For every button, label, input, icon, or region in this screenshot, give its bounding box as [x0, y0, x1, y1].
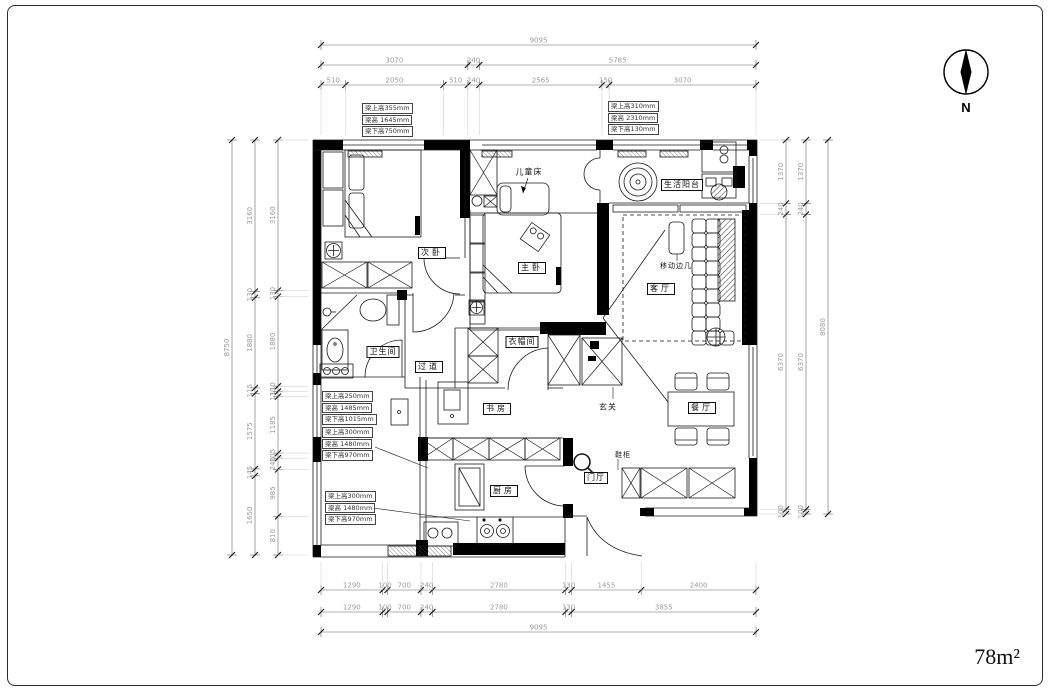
dim-value: 1650 [246, 507, 254, 525]
wardrobe-second-bedroom [368, 262, 412, 288]
label-shoe-cabinet: 鞋柜 [615, 450, 631, 460]
dim-value: 240 [467, 57, 480, 65]
beam-note-mid-left-lower: 梁上高300mm 梁高 1480mm 梁下高970mm [322, 427, 373, 462]
floor-plan-canvas: 9095 30702405785 51020505102402565150307… [0, 0, 1050, 691]
label-movable-side-table: 移动边几 [660, 261, 692, 271]
dim-value: 3070 [674, 77, 692, 85]
dim-value: 3160 [269, 206, 277, 224]
room-label-entry-hall: 门厅 [584, 472, 608, 484]
kitchen-cabinet-row [525, 438, 560, 460]
dim-chain-right-inner: 13702406370100 [760, 137, 791, 518]
bed-second-bedroom [323, 150, 421, 237]
kitchen-sink [424, 522, 458, 546]
dim-value: 1370 [797, 163, 805, 181]
dim-value: 240 [797, 202, 805, 215]
dim-value: 130 [246, 288, 254, 301]
shower-head-icon [323, 308, 336, 316]
living-room-guide-lines [603, 230, 668, 402]
dim-value: 6370 [777, 353, 785, 371]
wardrobe-second-bedroom [322, 262, 367, 288]
dim-value: 3160 [246, 207, 254, 225]
door-kitchen [525, 466, 565, 506]
shoe-cabinet-unit [622, 468, 640, 498]
label-foyer: 玄关 [599, 402, 617, 413]
dim-value: 2050 [386, 77, 404, 85]
dim-value: 1290 [343, 582, 361, 590]
dim-chain-bottom-total: 9095 [318, 624, 759, 638]
dim-value: 2400 [690, 582, 708, 590]
dim-value: 2780 [490, 582, 508, 590]
foyer-cabinet [582, 338, 622, 385]
dim-value: 8080 [819, 318, 827, 336]
dim-value: 9095 [530, 37, 548, 45]
room-label-kitchen: 厨房 [490, 485, 518, 497]
door-cloakroom [508, 348, 548, 390]
exhaust-fan-icon [325, 242, 342, 259]
foyer-cabinet [548, 335, 580, 385]
side-table [669, 222, 684, 254]
dim-value: 1880 [269, 333, 277, 351]
floor-drain-icon [711, 184, 727, 200]
dim-value: 130 [562, 604, 575, 612]
kitchen-cabinet-row [453, 438, 489, 460]
north-label: N [961, 100, 970, 115]
washing-machine [619, 163, 657, 201]
room-label-second-bedroom: 次卧 [418, 247, 446, 259]
room-label-cloakroom: 衣帽间 [506, 336, 539, 348]
dim-value: 240 [420, 582, 433, 590]
dim-value: 510 [449, 77, 462, 85]
beam-note-mid-left-upper: 梁上高250mm 梁高 1485mm 梁下高1015mm [322, 391, 377, 426]
dim-value: 100 [378, 582, 391, 590]
dim-value: 9095 [530, 624, 548, 632]
dim-value: 985 [269, 486, 277, 499]
toilet [360, 295, 399, 325]
dim-value: 810 [269, 529, 277, 542]
dim-value: 3070 [386, 57, 404, 65]
counter-hatch [388, 546, 451, 556]
sofa-wall-panel [718, 219, 735, 301]
hall-cabinet [391, 399, 408, 425]
chair-master-bedroom [520, 222, 549, 251]
room-label-dining-room: 餐厅 [688, 402, 716, 414]
dim-chain-bottom-row2: 129010070024027801303855 [318, 604, 759, 618]
dim-value: 6370 [797, 353, 805, 371]
room-label-study: 书房 [483, 403, 511, 415]
door-master-bedroom [413, 293, 454, 332]
beam-note-top-right: 梁上高310mm 梁高 2310mm 梁下高130mm [608, 101, 659, 136]
shoe-cabinet-unit [689, 468, 735, 498]
door-second-bedroom [424, 258, 460, 294]
dim-value: 8750 [223, 339, 231, 357]
dim-value: 700 [398, 604, 411, 612]
sofa-corner [692, 331, 734, 345]
dim-value: 100 [378, 604, 391, 612]
beam-note-top-left: 梁上高355mm 梁高 1645mm 梁下高750mm [362, 103, 413, 138]
dim-value: 1185 [269, 416, 277, 434]
room-label-living-balcony: 生活阳台 [661, 179, 703, 191]
kitchen-cabinet-row [489, 438, 525, 460]
dim-value: 1290 [343, 604, 361, 612]
area-label: 78m² [974, 644, 1020, 670]
dim-chain-bottom-row1: 1290100700240278013014552400 [318, 562, 759, 595]
dim-value: 110 [269, 387, 277, 400]
dim-value: 115 [246, 384, 254, 397]
dim-value: 2565 [532, 77, 550, 85]
dim-chain-top-row2: 30702405785 [318, 57, 759, 71]
dim-chain-top-total: 9095 [318, 37, 759, 51]
door-entrance [587, 517, 642, 556]
dim-value: 3855 [655, 604, 673, 612]
door-balcony [584, 158, 600, 190]
room-label-bathroom: 卫生间 [367, 346, 400, 358]
fridge [455, 464, 484, 510]
dim-chain-right-total: 8080 [819, 137, 833, 517]
dim-value: 240 [420, 604, 433, 612]
dim-value: 5785 [609, 57, 627, 65]
stove [477, 517, 513, 544]
dim-value: 100 [777, 505, 785, 518]
dim-value: 130 [562, 582, 575, 590]
children-bed-arrow [521, 178, 528, 193]
dim-chain-left-mid: 3160130188011515751451650 [246, 137, 260, 558]
room-label-hallway: 过道 [415, 361, 443, 373]
dim-value: 145 [246, 466, 254, 479]
cloakroom-cabinet [468, 328, 498, 356]
shoe-cabinet-unit [641, 468, 687, 498]
dim-value: 700 [398, 582, 411, 590]
dim-chain-right-mid: 13702406370100 [797, 137, 811, 518]
dim-value: 240 [269, 457, 277, 470]
dim-value: 150 [599, 77, 612, 85]
dim-value: 510 [327, 77, 340, 85]
cabinet-children-room [484, 196, 497, 207]
sofa [692, 219, 720, 331]
dim-value: 240 [777, 202, 785, 215]
label-children-bed: 儿童床 [516, 167, 543, 178]
dim-value: 130 [269, 287, 277, 300]
dim-value: 240 [467, 77, 480, 85]
dim-value: 100 [797, 505, 805, 518]
dim-chain-left-inner: 316013018801101101185105240985810 [269, 137, 308, 558]
dim-chain-left-total: 8750 [223, 137, 237, 558]
room-label-living-room: 客厅 [647, 283, 675, 295]
cloakroom-cabinet [468, 356, 498, 383]
dim-value: 1880 [246, 334, 254, 352]
room-label-master-bedroom: 主卧 [518, 262, 546, 274]
north-arrow [944, 49, 988, 95]
dim-value: 2780 [490, 604, 508, 612]
dim-value: 1455 [598, 582, 616, 590]
dim-value: 1370 [777, 163, 785, 181]
beam-note-bottom-left: 梁上高300mm 梁高 1480mm 梁下高970mm [325, 491, 376, 526]
dim-value: 1575 [246, 422, 254, 440]
